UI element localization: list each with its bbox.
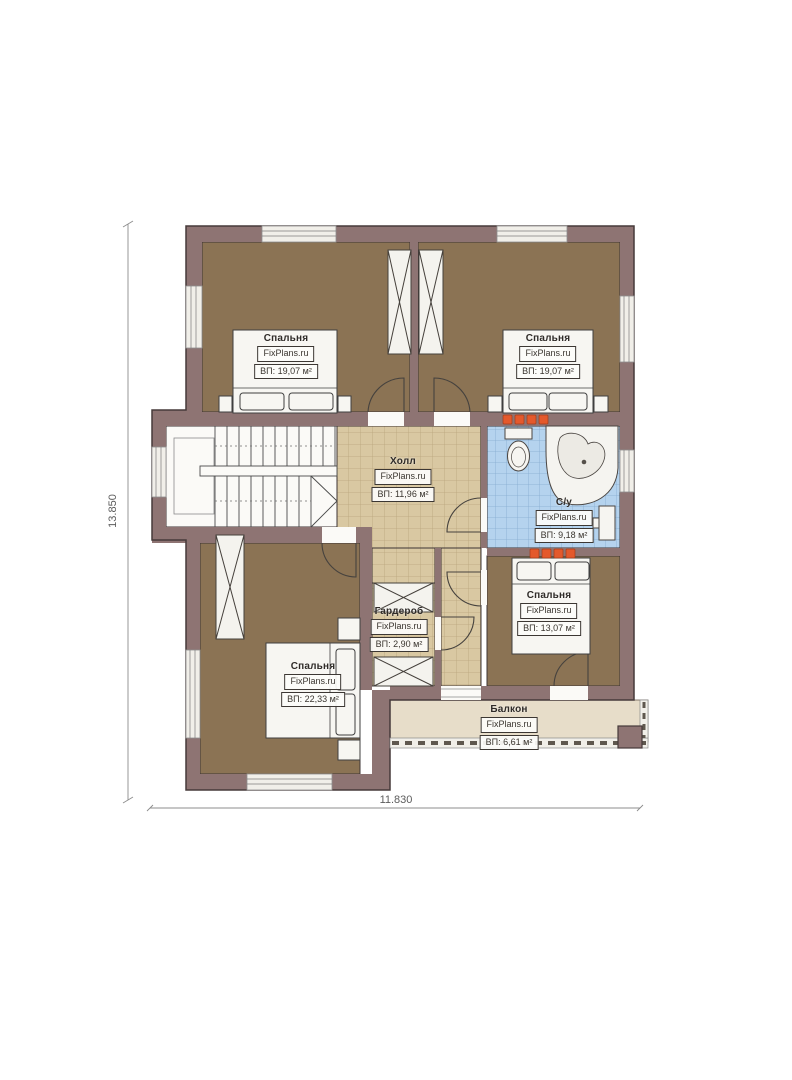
room-label-bedroom-bottom-left: Спальня FixPlans.ru ВП: 22,33 м² <box>281 661 345 707</box>
room-name: Холл <box>390 456 416 467</box>
toilet <box>505 428 532 471</box>
watermark: FixPlans.ru <box>284 674 341 690</box>
floor-plan-drawing <box>0 0 792 1080</box>
room-name: Спальня <box>527 590 572 601</box>
watermark: FixPlans.ru <box>480 717 537 733</box>
room-area: ВП: 19,07 м² <box>254 364 318 380</box>
room-label-bathroom: С/у FixPlans.ru ВП: 9,18 м² <box>535 497 594 543</box>
room-name: Балкон <box>490 704 527 715</box>
room-label-balcony: Балкон FixPlans.ru ВП: 6,61 м² <box>480 704 539 750</box>
floor-plan-canvas: Спальня FixPlans.ru ВП: 19,07 м² Спальня… <box>0 0 792 1080</box>
balcony-pillar <box>618 726 642 748</box>
room-label-bedroom-top-left: Спальня FixPlans.ru ВП: 19,07 м² <box>254 333 318 379</box>
dimension-height-label: 13.850 <box>107 494 119 528</box>
room-area: ВП: 2,90 м² <box>370 637 429 653</box>
watermark: FixPlans.ru <box>519 346 576 362</box>
room-area: ВП: 6,61 м² <box>480 735 539 751</box>
room-label-wardrobe: Гардероб FixPlans.ru ВП: 2,90 м² <box>370 606 429 652</box>
room-area: ВП: 22,33 м² <box>281 692 345 708</box>
room-label-bedroom-right: Спальня FixPlans.ru ВП: 13,07 м² <box>517 590 581 636</box>
room-name: Гардероб <box>375 606 424 617</box>
dimension-width-label: 11.830 <box>380 794 413 806</box>
room-name: Спальня <box>526 333 571 344</box>
watermark: FixPlans.ru <box>520 603 577 619</box>
room-name: Спальня <box>264 333 309 344</box>
room-area: ВП: 19,07 м² <box>516 364 580 380</box>
room-name: С/у <box>556 497 572 508</box>
watermark: FixPlans.ru <box>535 510 592 526</box>
watermark: FixPlans.ru <box>257 346 314 362</box>
room-area: ВП: 11,96 м² <box>371 487 434 503</box>
room-label-hall: Холл FixPlans.ru ВП: 11,96 м² <box>371 456 434 502</box>
room-area: ВП: 9,18 м² <box>535 528 594 544</box>
room-area: ВП: 13,07 м² <box>517 621 581 637</box>
room-label-bedroom-top-right: Спальня FixPlans.ru ВП: 19,07 м² <box>516 333 580 379</box>
watermark: FixPlans.ru <box>374 469 431 485</box>
room-name: Спальня <box>291 661 336 672</box>
watermark: FixPlans.ru <box>370 619 427 635</box>
corner-bathtub <box>546 426 618 505</box>
